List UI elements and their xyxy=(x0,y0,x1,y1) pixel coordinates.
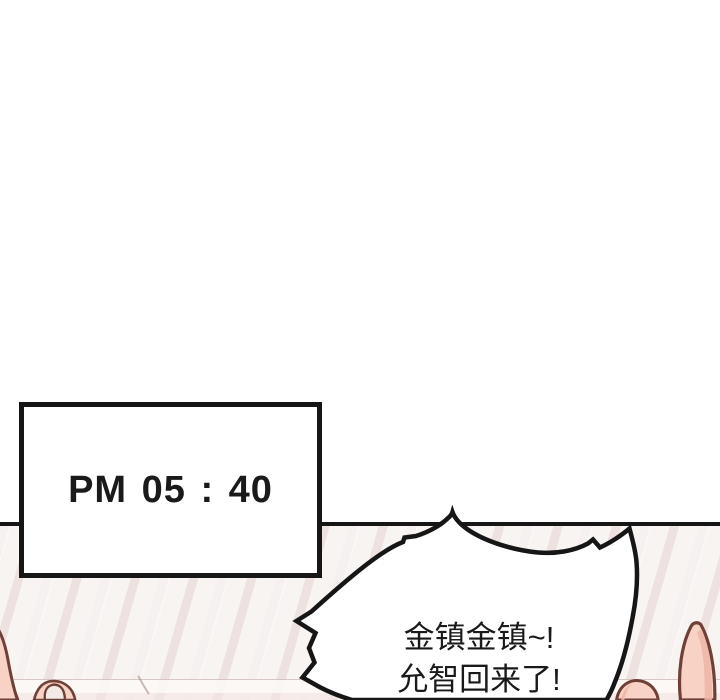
time-caption-box: PM 05 : 40 xyxy=(19,402,322,578)
fingernail xyxy=(45,685,65,700)
time-caption-label: PM 05 : 40 xyxy=(68,469,273,512)
panel-artwork xyxy=(0,0,720,700)
speech-bubble-line-2: 允智回来了! xyxy=(334,659,624,700)
comic-page: PM 05 : 40 金镇金镇~! 允智回来了! xyxy=(0,0,720,700)
blanket-crease-line xyxy=(139,677,149,694)
speech-bubble-text: 金镇金镇~! 允智回来了! xyxy=(334,617,624,700)
speech-bubble-line-1: 金镇金镇~! xyxy=(334,617,624,659)
